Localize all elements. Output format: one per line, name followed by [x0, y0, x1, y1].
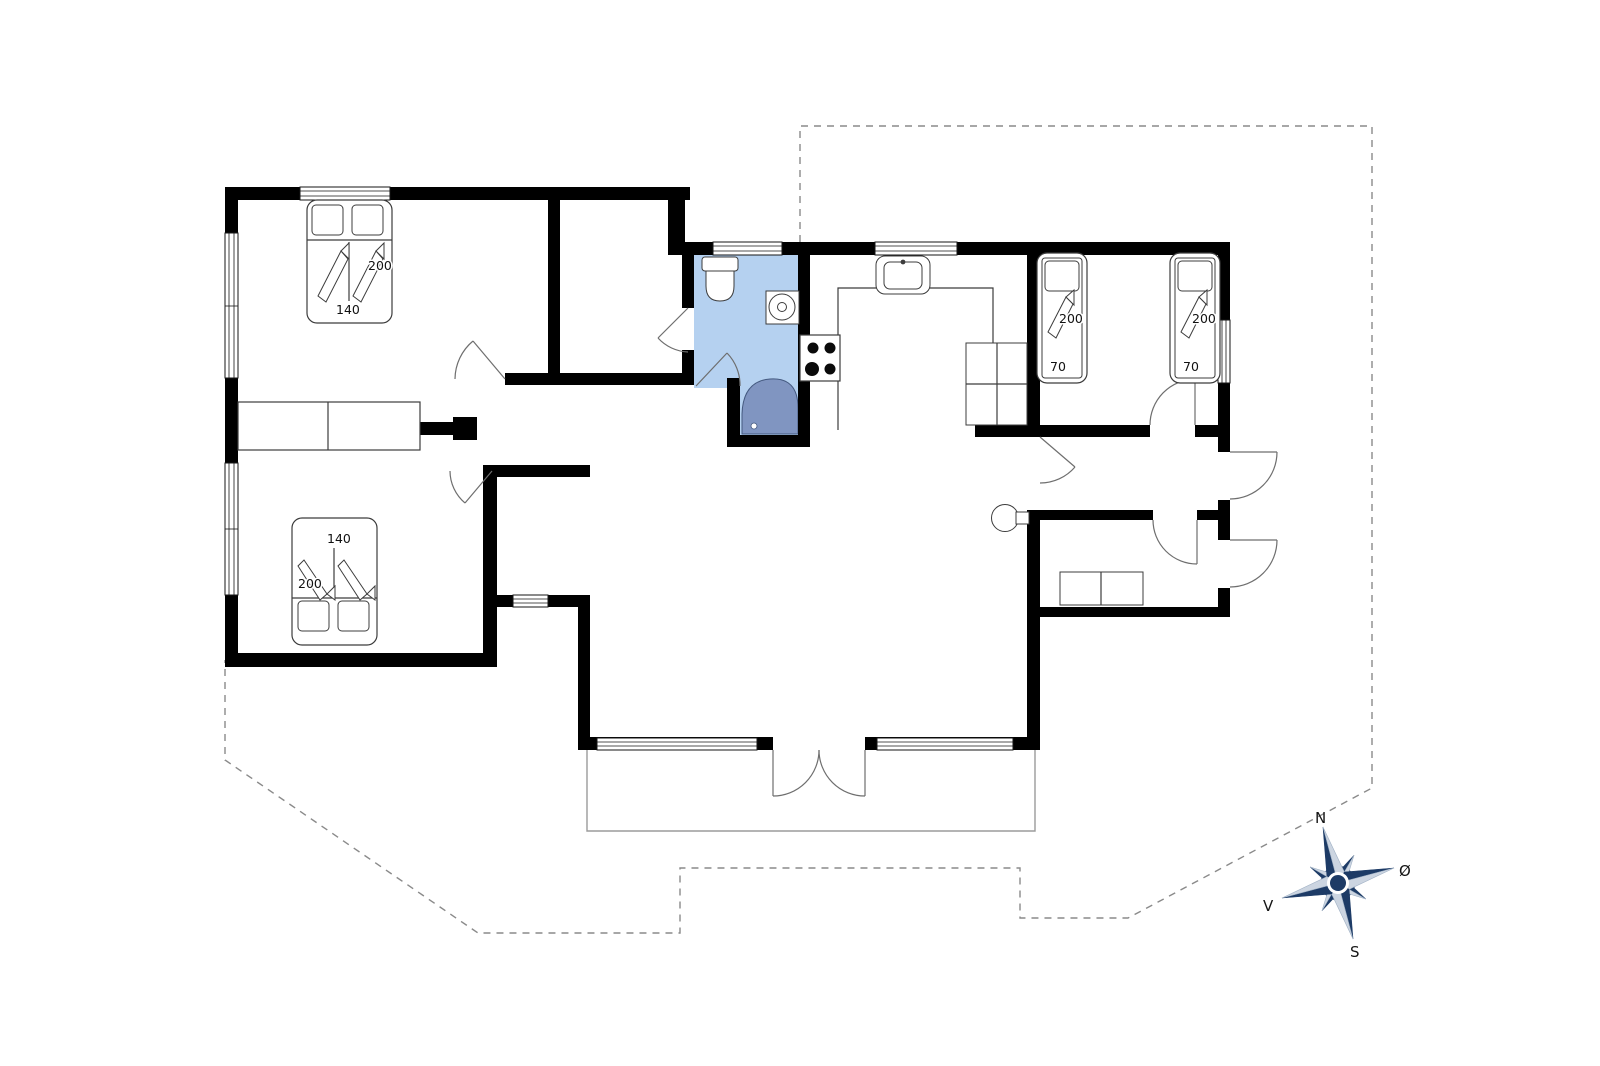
shower-tray [742, 379, 798, 434]
wall-segment [668, 187, 685, 255]
wall-segment [548, 200, 560, 385]
pillow [338, 601, 369, 631]
window [225, 463, 238, 595]
bed-length-label: 200 [298, 576, 322, 591]
wardrobe [238, 402, 420, 450]
double-bed-bottom: 140 200 [292, 518, 377, 645]
bed-width-label: 70 [1050, 359, 1066, 374]
wall-segment [975, 425, 1150, 437]
window [225, 233, 238, 378]
toilet [702, 257, 738, 301]
wall-segment [483, 465, 497, 667]
wall-segment [1218, 500, 1230, 540]
wall-segment [225, 653, 497, 667]
bed-width-label: 70 [1183, 359, 1199, 374]
wall-segment [727, 435, 810, 447]
kitchen-sink [876, 256, 930, 294]
wall-segment [225, 187, 690, 200]
compass-north-label: N [1315, 809, 1326, 827]
shower-drain [751, 423, 757, 429]
compass-rose: N Ø S V [1263, 809, 1411, 961]
door-hallway [1040, 437, 1075, 483]
door-bedroom-top [455, 341, 505, 379]
pillow [312, 205, 343, 235]
wall-segment [1027, 607, 1230, 617]
bed-length-label: 200 [1192, 311, 1216, 326]
window [875, 242, 957, 255]
compass-west-label: V [1263, 897, 1274, 915]
wall-segment [682, 255, 694, 308]
door-terrace-double [773, 750, 865, 796]
single-bed-right: 200 70 [1170, 253, 1220, 383]
terrace-outline [587, 744, 1035, 831]
pillow [1178, 261, 1212, 291]
utility-cabinets [1060, 572, 1143, 605]
wall-segment [578, 595, 590, 748]
double-bed-top: 200 140 [307, 200, 392, 323]
window [713, 242, 782, 255]
window [877, 738, 1013, 750]
bathroom-sink [766, 291, 799, 324]
stove [800, 335, 840, 381]
bed-length-label: 200 [368, 258, 392, 273]
door-right-bedroom [1150, 379, 1195, 425]
wall-segment [453, 417, 477, 440]
wall-segment [483, 465, 590, 477]
pillow [298, 601, 329, 631]
pillow [1045, 261, 1079, 291]
door-exterior-east-1 [1230, 452, 1277, 499]
floor-plan-drawing: 200 140 140 200 200 70 200 70 [0, 0, 1600, 1066]
compass-east-label: Ø [1399, 862, 1411, 880]
door-utility [1153, 520, 1197, 564]
floor-plan-page: 200 140 140 200 200 70 200 70 [0, 0, 1600, 1066]
window [597, 738, 757, 750]
pillow [352, 205, 383, 235]
window [513, 595, 548, 607]
compass-south-label: S [1350, 943, 1360, 961]
window [300, 187, 390, 200]
bed-width-label: 140 [327, 531, 351, 546]
wall-segment [505, 373, 694, 385]
kitchen-counter [838, 288, 1027, 430]
single-bed-left: 200 70 [1037, 253, 1087, 383]
water-heater [992, 505, 1030, 532]
bed-width-label: 140 [336, 302, 360, 317]
bed-length-label: 200 [1059, 311, 1083, 326]
wall-segment [1040, 510, 1153, 520]
door-exterior-east-2 [1230, 540, 1277, 587]
door-small-room [658, 308, 688, 352]
wall-segment [1197, 510, 1218, 520]
wall-segment [1027, 510, 1040, 748]
